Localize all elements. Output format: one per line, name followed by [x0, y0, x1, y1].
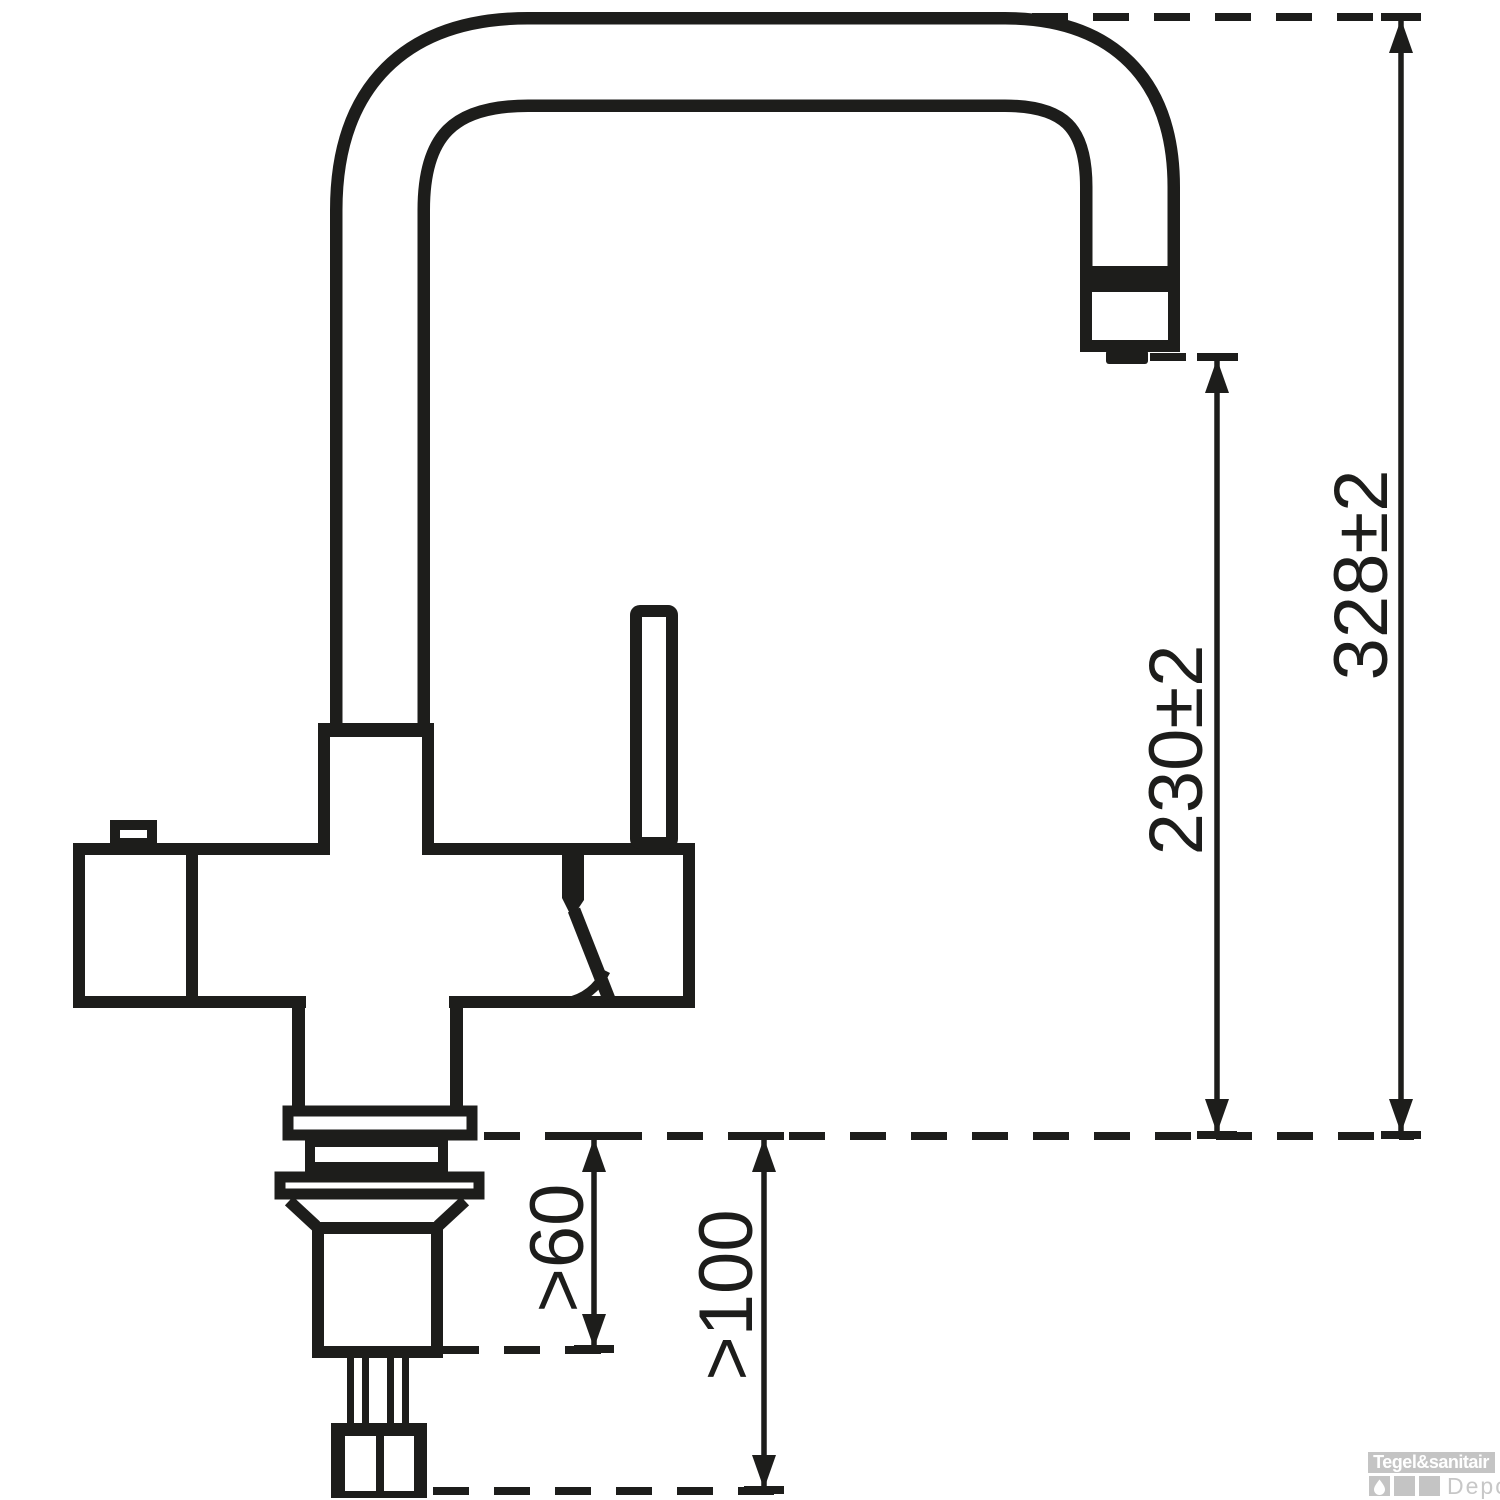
aerator-tip — [1106, 350, 1148, 364]
body-divider — [186, 843, 198, 1008]
faucet-dimension-diagram: 328±2 230±2 >60 >100 Tegel&sanitair Depo… — [0, 0, 1500, 1500]
dimension-label-overall-height: 328±2 — [1319, 470, 1404, 681]
hose-1-wall — [347, 1352, 354, 1426]
watermark-suffix-text: Depot — [1447, 1473, 1500, 1499]
lever-cartridge-wedge — [562, 843, 584, 918]
dimension-label-min-60: >60 — [515, 1184, 600, 1313]
column-wall-right — [422, 723, 434, 855]
mounting-nut — [280, 1177, 479, 1194]
base-column-right-wall — [450, 996, 463, 1112]
watermark-brand-text: Tegel&sanitair — [1373, 1452, 1489, 1472]
handle-lever — [562, 611, 672, 1002]
connector-window — [384, 1436, 414, 1491]
connector-window — [345, 1436, 376, 1491]
body-right-wall — [683, 843, 695, 1008]
body-side-button — [115, 825, 152, 843]
watermark: Tegel&sanitair Depot — [1368, 1452, 1500, 1499]
deck-flange — [288, 1111, 472, 1135]
hose-1-wall — [362, 1352, 369, 1426]
threaded-shank — [318, 1228, 437, 1352]
mounting-base — [280, 996, 479, 1352]
base-column-left-wall — [292, 996, 305, 1112]
watermark-square — [1394, 1476, 1415, 1496]
spacer-block — [310, 1142, 443, 1167]
supply-hoses — [331, 1352, 427, 1498]
watermark-square — [1419, 1476, 1440, 1496]
lever-shaft — [636, 611, 672, 843]
spout-tube-core — [380, 62, 1130, 723]
faucet-spout-tube — [380, 62, 1174, 737]
dimension-label-min-100: >100 — [684, 1209, 769, 1380]
technical-drawing-canvas: 328±2 230±2 >60 >100 Tegel&sanitair Depo… — [0, 0, 1500, 1500]
hose-2-wall — [387, 1352, 394, 1426]
spout-end-cap — [1086, 286, 1174, 346]
taper-left — [289, 1201, 316, 1226]
dimension-label-spout-height: 230±2 — [1134, 645, 1219, 856]
spout-tube-outline — [380, 62, 1130, 737]
column-step — [318, 723, 434, 737]
hose-2-wall — [402, 1352, 409, 1426]
body-bottom-line-left — [73, 996, 306, 1008]
body-left-wall — [73, 843, 85, 1008]
column-wall-left — [318, 723, 330, 855]
